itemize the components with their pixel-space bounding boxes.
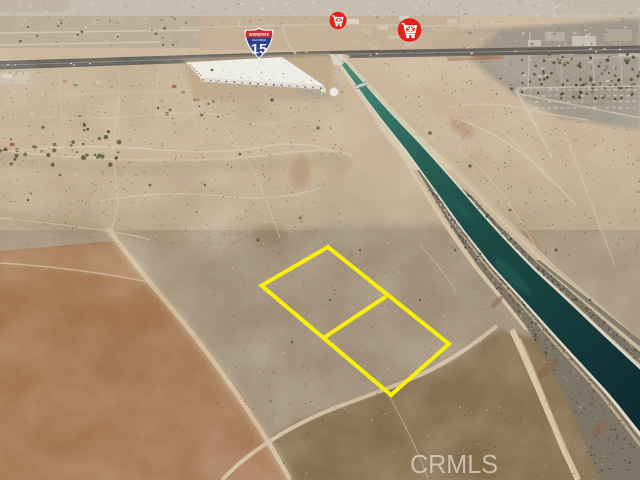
svg-text:CRMLS: CRMLS — [410, 449, 498, 479]
svg-text:15: 15 — [251, 42, 267, 58]
svg-text:INTERSTATE: INTERSTATE — [249, 32, 269, 37]
